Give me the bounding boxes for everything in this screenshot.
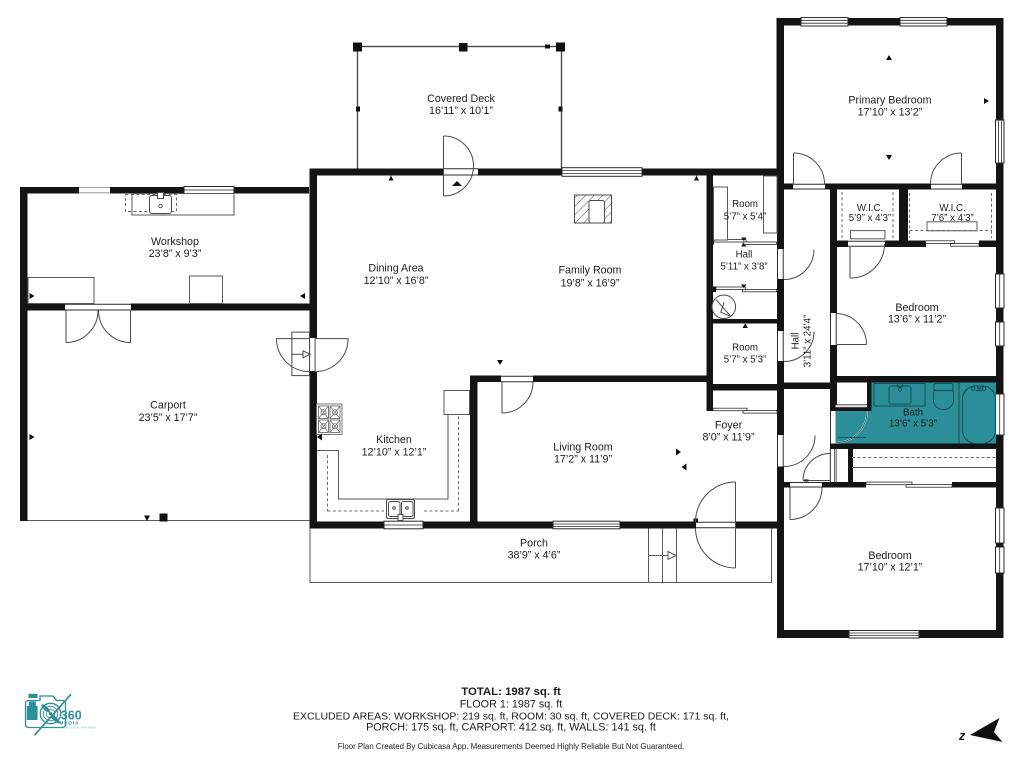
- svg-text:Dining Area: Dining Area: [368, 263, 423, 275]
- svg-text:Foyer: Foyer: [715, 420, 743, 432]
- svg-text:Kitchen: Kitchen: [376, 434, 412, 446]
- svg-text:Floor Plan Created By Cubicasa: Floor Plan Created By Cubicasa App. Meas…: [338, 742, 685, 751]
- svg-text:Covered Deck: Covered Deck: [427, 93, 495, 105]
- svg-text:Workshop: Workshop: [151, 236, 199, 248]
- svg-text:17’10” x 12’1”: 17’10” x 12’1”: [858, 562, 923, 574]
- svg-text:38’9” x 4’6”: 38’9” x 4’6”: [508, 550, 561, 562]
- svg-text:360: 360: [61, 708, 82, 722]
- svg-text:3’11” x 24’4”: 3’11” x 24’4”: [803, 315, 814, 368]
- svg-text:Room: Room: [732, 343, 758, 354]
- svg-text:17’2” x 11’9”: 17’2” x 11’9”: [554, 454, 612, 466]
- svg-text:13’6” x 5’3”: 13’6” x 5’3”: [889, 419, 937, 430]
- svg-text:23’5” x 17’7”: 23’5” x 17’7”: [139, 412, 198, 424]
- svg-text:Living Room: Living Room: [553, 442, 612, 454]
- svg-text:Hall: Hall: [791, 333, 802, 350]
- svg-text:Family Room: Family Room: [559, 265, 622, 277]
- svg-text:FLOOR 1: 1987 sq. ft: FLOOR 1: 1987 sq. ft: [460, 699, 563, 711]
- svg-text:Bedroom: Bedroom: [868, 550, 911, 562]
- svg-text:8’0” x 11’9”: 8’0” x 11’9”: [702, 432, 755, 444]
- svg-text:17’10” x 13’2”: 17’10” x 13’2”: [858, 107, 923, 119]
- svg-text:Primary Bedroom: Primary Bedroom: [848, 95, 931, 107]
- svg-text:Room: Room: [732, 199, 758, 210]
- svg-text:5’11” x 3’8”: 5’11” x 3’8”: [720, 262, 767, 273]
- svg-text:7’6” x 4’3”: 7’6” x 4’3”: [931, 213, 974, 224]
- svg-text:Porch: Porch: [520, 538, 548, 550]
- svg-text:Carport: Carport: [150, 400, 186, 412]
- svg-text:YOUR VISUAL PARTNER: YOUR VISUAL PARTNER: [60, 725, 96, 729]
- svg-text:23’8” x 9’3”: 23’8” x 9’3”: [149, 248, 202, 260]
- svg-text:5’7” x 5’4”: 5’7” x 5’4”: [724, 212, 767, 223]
- svg-text:PORCH: 175 sq. ft, CARPORT: 41: PORCH: 175 sq. ft, CARPORT: 412 sq. ft, …: [366, 722, 656, 734]
- svg-text:Hall: Hall: [736, 250, 753, 261]
- svg-text:5’7” x 5’3”: 5’7” x 5’3”: [724, 355, 767, 366]
- svg-text:19’8” x 16’9”: 19’8” x 16’9”: [561, 278, 620, 290]
- svg-text:z: z: [958, 729, 966, 743]
- svg-text:5’9” x 4’3”: 5’9” x 4’3”: [849, 213, 892, 224]
- svg-text:13’6” x 11’2”: 13’6” x 11’2”: [888, 314, 946, 326]
- svg-text:TOTAL: 1987 sq. ft: TOTAL: 1987 sq. ft: [461, 686, 561, 698]
- svg-text:Bath: Bath: [903, 408, 923, 419]
- svg-text:Bedroom: Bedroom: [895, 302, 938, 314]
- svg-text:16’11” x 10’1”: 16’11” x 10’1”: [429, 105, 493, 117]
- svg-text:12’10” x 12’1”: 12’10” x 12’1”: [362, 447, 427, 459]
- svg-text:12’10” x 16’8”: 12’10” x 16’8”: [364, 275, 429, 287]
